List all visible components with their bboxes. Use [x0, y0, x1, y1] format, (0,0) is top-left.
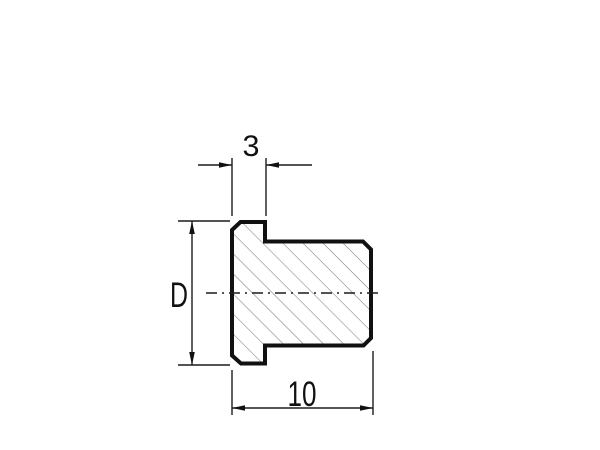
arrowhead-right-pointing	[360, 405, 373, 411]
arrowhead-left-pointing	[232, 405, 245, 411]
dimension-label-total-length: 10	[288, 375, 317, 414]
dimension-label-diameter: D	[170, 276, 188, 315]
technical-drawing-canvas: 3 D 10	[0, 0, 600, 450]
dimension-flange-thickness: 3	[198, 130, 312, 216]
dimension-diameter: D	[170, 221, 230, 365]
arrowhead-right-pointing	[219, 162, 232, 168]
arrowhead-up-pointing	[189, 221, 195, 234]
arrowhead-down-pointing	[189, 352, 195, 365]
arrowhead-left-pointing	[266, 162, 279, 168]
dimension-label-flange-thickness: 3	[243, 130, 260, 163]
drawing-page: 3 D 10	[0, 0, 600, 450]
